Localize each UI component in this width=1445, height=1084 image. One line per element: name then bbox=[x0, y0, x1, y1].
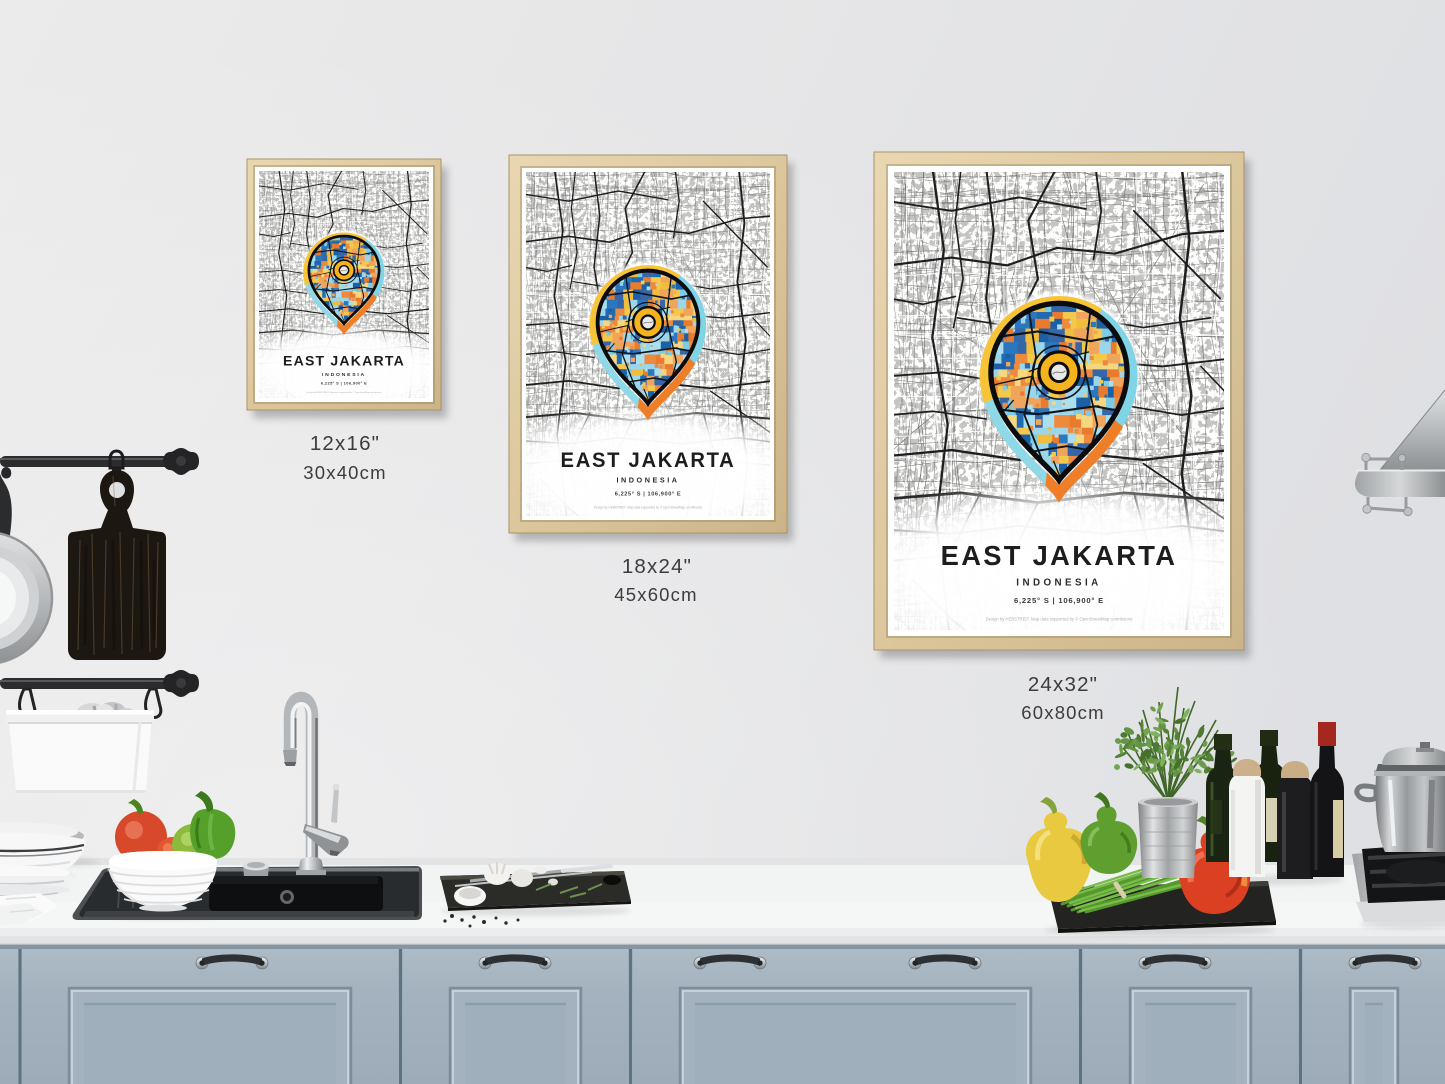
svg-text:30x40cm: 30x40cm bbox=[303, 462, 386, 483]
svg-text:24x32": 24x32" bbox=[1028, 673, 1098, 696]
svg-text:45x60cm: 45x60cm bbox=[614, 584, 697, 605]
svg-text:60x80cm: 60x80cm bbox=[1021, 702, 1104, 723]
svg-text:18x24": 18x24" bbox=[622, 555, 692, 578]
svg-text:12x16": 12x16" bbox=[310, 432, 380, 455]
